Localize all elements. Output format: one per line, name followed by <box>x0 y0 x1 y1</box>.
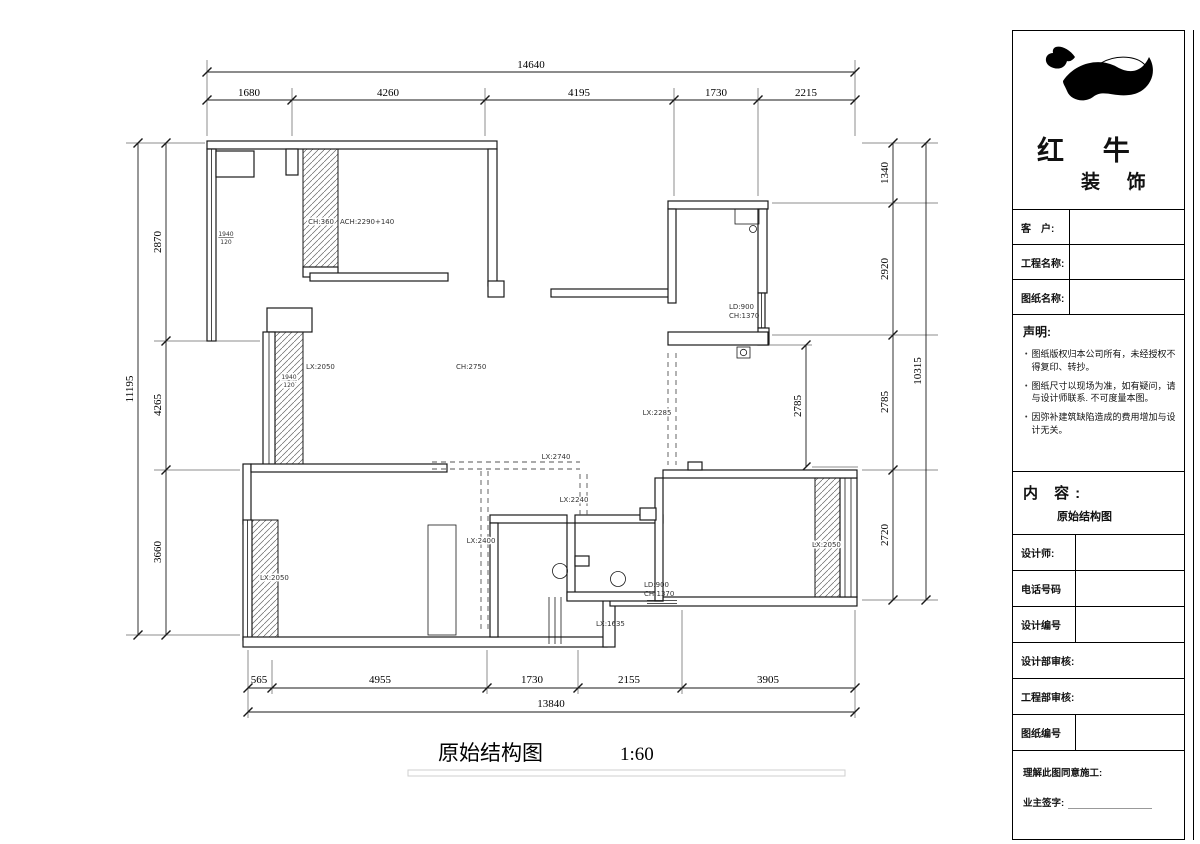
floor-plan: 14640 1680 4260 4195 1730 2215 11195 287… <box>0 0 1010 844</box>
dim-top-seg-4: 1730 <box>705 87 728 99</box>
dim-left-seg-3: 3660 <box>152 541 164 564</box>
statement-item-text: 图纸版权归本公司所有，未经授权不得复印、转抄。 <box>1031 348 1181 374</box>
bullet-icon: • <box>1025 350 1027 374</box>
ceiling-label-ch2750: CH:2750 <box>456 363 486 371</box>
detail-row-design-audit: 设计部审核: <box>1013 642 1184 678</box>
title-block: 红 牛 装 饰 客 户: 工程名称: 图纸名称: 声明: • 图纸版权归本公司所… <box>1012 30 1185 840</box>
floor-drain-1 <box>553 564 568 579</box>
field-row-sheet-name: 图纸名称: <box>1013 279 1184 314</box>
dim-top-seg-5: 2215 <box>795 87 818 99</box>
dim-bottom-seg-5: 3905 <box>757 674 780 686</box>
field-value-customer <box>1069 210 1184 244</box>
beam-label-lx2050-bl: LX:2050 <box>260 574 289 582</box>
dim-top-seg-2: 4260 <box>377 87 400 99</box>
window-label-ch1370-1: CH:1370 <box>729 312 759 320</box>
window-tag-1-top: 1940 <box>218 231 233 238</box>
detail-value-engineering-audit <box>1075 679 1184 714</box>
beam-label-lx2285: LX:2285 <box>643 409 672 417</box>
brand-subname: 装 饰 <box>1081 167 1157 194</box>
dim-bottom-seg-2: 4955 <box>369 674 392 686</box>
statement-heading: 声明: <box>1023 323 1184 340</box>
brand-name: 红 牛 <box>1037 129 1146 168</box>
detail-row-engineering-audit: 工程部审核: <box>1013 678 1184 714</box>
upper-beam-note-prefix: CH:360 <box>308 218 334 226</box>
beam-label-lx2740: LX:2740 <box>542 453 571 461</box>
bullet-icon: • <box>1025 413 1027 437</box>
drawing-sheet: 14640 1680 4260 4195 1730 2215 11195 287… <box>0 0 1200 844</box>
dim-interior: 2785 <box>792 395 804 418</box>
beam-label-lx2240: LX:2240 <box>560 496 589 504</box>
upper-right-room <box>668 201 769 358</box>
window-tag-2-top: 1940 <box>281 374 296 381</box>
field-value-project-name <box>1069 245 1184 279</box>
detail-row-design-no: 设计编号 <box>1013 606 1184 642</box>
content-value: 原始结构图 <box>1057 508 1184 524</box>
owner-signature-line: 业主签字: <box>1023 795 1184 809</box>
statement-item: • 因弥补建筑缺陷造成的费用增加与设计无关。 <box>1025 411 1181 437</box>
dim-top-total: 14640 <box>517 59 545 71</box>
dim-bottom-seg-1: 565 <box>251 674 268 686</box>
sheet-frame-line <box>1193 30 1194 840</box>
dim-right-seg-1: 1340 <box>879 162 891 185</box>
signature-blank <box>1068 798 1152 809</box>
beam-label-lx2400: LX:2400 <box>467 537 496 545</box>
detail-label-design-audit: 设计部审核: <box>1013 643 1075 678</box>
statement-item: • 图纸尺寸以现场为准，如有疑问，请与设计师联系. 不可度量本图。 <box>1025 380 1181 406</box>
detail-label-design-no: 设计编号 <box>1013 607 1075 642</box>
brand-bull-logo-icon <box>1041 41 1161 131</box>
owner-signature-label: 业主签字: <box>1023 795 1064 809</box>
bullet-icon: • <box>1025 382 1027 406</box>
field-row-project-name: 工程名称: <box>1013 244 1184 279</box>
dim-right-seg-3: 2785 <box>879 391 891 414</box>
detail-label-phone: 电话号码 <box>1013 571 1075 606</box>
field-label-project-name: 工程名称: <box>1013 245 1069 279</box>
content-section: 内 容: 原始结构图 <box>1013 471 1184 534</box>
content-heading: 内 容: <box>1023 482 1184 503</box>
beam-label-lx2050-br: LX:2050 <box>812 541 841 549</box>
beam-label-lx2050-mid: LX:2050 <box>306 363 335 371</box>
dim-right-seg-2: 2920 <box>879 258 891 281</box>
detail-value-sheet-no <box>1075 715 1184 750</box>
detail-row-phone: 电话号码 <box>1013 570 1184 606</box>
floor-drain-2 <box>611 572 626 587</box>
detail-value-design-audit <box>1075 643 1184 678</box>
detail-label-designer: 设计师: <box>1013 535 1075 570</box>
dim-right-seg-4: 2720 <box>879 524 891 547</box>
dim-top-seg-3: 4195 <box>568 87 591 99</box>
dim-right-total: 10315 <box>912 357 924 385</box>
dim-bottom-total: 13840 <box>537 698 565 710</box>
field-row-customer: 客 户: <box>1013 209 1184 244</box>
caption-underline <box>408 770 845 776</box>
dim-left-seg-2: 4265 <box>152 394 164 417</box>
window-label-ld900-1: LD:900 <box>729 303 754 311</box>
detail-value-phone <box>1075 571 1184 606</box>
dim-left-total: 11195 <box>124 375 136 402</box>
dim-bottom-seg-3: 1730 <box>521 674 544 686</box>
signature-section: 理解此图同意施工: 业主签字: <box>1013 750 1184 839</box>
detail-value-designer <box>1075 535 1184 570</box>
detail-value-design-no <box>1075 607 1184 642</box>
caption-title: 原始结构图 <box>438 741 543 765</box>
brand-logo-area: 红 牛 装 饰 <box>1013 31 1184 209</box>
dim-left-seg-1: 2870 <box>152 231 164 254</box>
field-label-sheet-name: 图纸名称: <box>1013 280 1069 314</box>
caption: 原始结构图 1:60 <box>408 741 845 776</box>
detail-row-designer: 设计师: <box>1013 534 1184 570</box>
caption-scale: 1:60 <box>620 744 654 765</box>
dim-bottom-seg-4: 2155 <box>618 674 641 686</box>
statement-item-text: 因弥补建筑缺陷造成的费用增加与设计无关。 <box>1031 411 1181 437</box>
window-tag-2-bottom: 120 <box>283 382 295 389</box>
beam-label-lx1635: LX:1635 <box>596 620 625 628</box>
statement-item: • 图纸版权归本公司所有，未经授权不得复印、转抄。 <box>1025 348 1181 374</box>
window-label-ld900-2: LD:900 <box>644 581 669 589</box>
consent-line: 理解此图同意施工: <box>1023 765 1184 779</box>
window-label-ch1370-2: CH:1370 <box>644 590 674 598</box>
statement-item-text: 图纸尺寸以现场为准，如有疑问，请与设计师联系. 不可度量本图。 <box>1031 380 1181 406</box>
upper-beam-note: ACH:2290+140 <box>340 218 394 226</box>
detail-label-sheet-no: 图纸编号 <box>1013 715 1075 750</box>
dim-top-seg-1: 1680 <box>238 87 261 99</box>
statement-section: 声明: • 图纸版权归本公司所有，未经授权不得复印、转抄。 • 图纸尺寸以现场为… <box>1013 314 1184 471</box>
field-value-sheet-name <box>1069 280 1184 314</box>
detail-label-engineering-audit: 工程部审核: <box>1013 679 1075 714</box>
window-tag-1-bottom: 120 <box>220 239 232 246</box>
beam-dashed-lines <box>432 353 676 632</box>
field-label-customer: 客 户: <box>1013 210 1069 244</box>
detail-row-sheet-no: 图纸编号 <box>1013 714 1184 750</box>
